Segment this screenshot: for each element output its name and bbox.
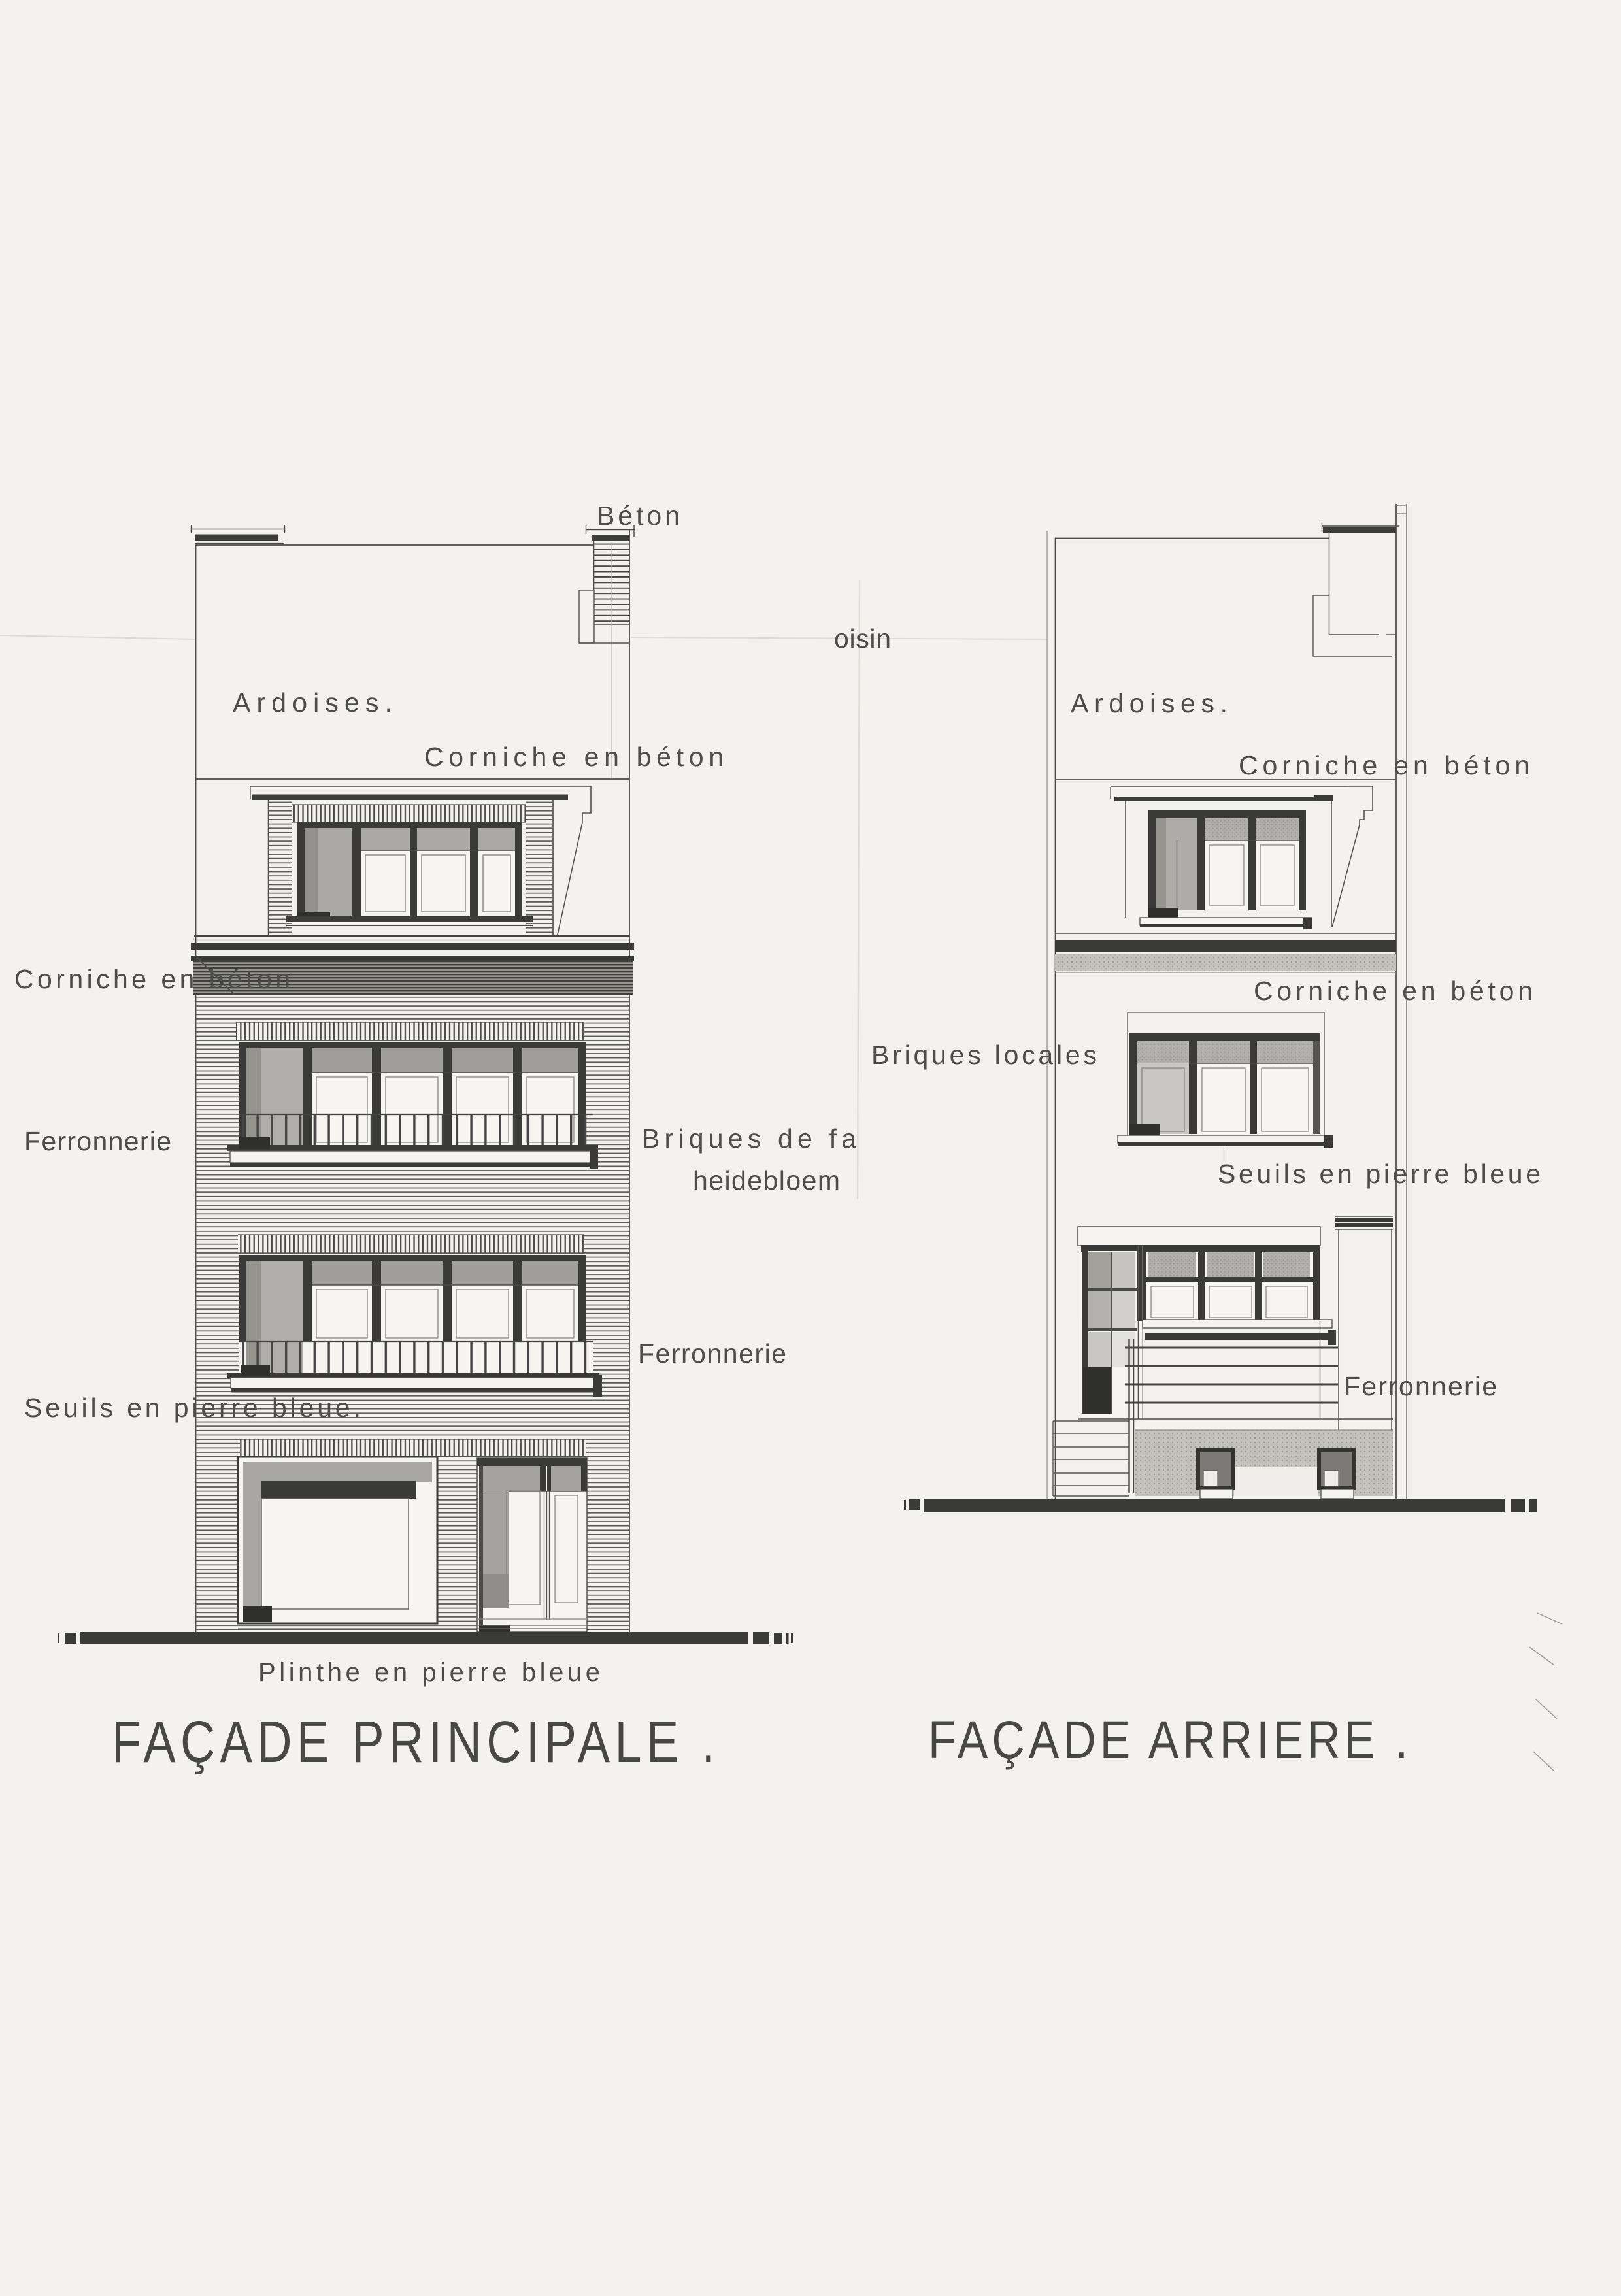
svg-text:FAÇADE PRINCIPALE .: FAÇADE PRINCIPALE . [112,1710,715,1775]
svg-text:Seuils en pierre bleue.: Seuils en pierre bleue. [24,1393,361,1423]
svg-text:Ferronnerie: Ferronnerie [638,1339,786,1369]
svg-text:Ferronnerie: Ferronnerie [24,1126,171,1156]
svg-text:Corniche en béton: Corniche en béton [1239,750,1529,780]
svg-text:Ferronnerie: Ferronnerie [1344,1371,1497,1401]
svg-text:heidebloem: heidebloem [693,1165,840,1195]
svg-text:Béton: Béton [597,501,680,531]
svg-text:Corniche en béton: Corniche en béton [424,742,724,772]
svg-text:Seuils en pierre bleue: Seuils en pierre bleue [1218,1159,1541,1189]
svg-text:Corniche en béton: Corniche en béton [14,964,290,994]
svg-text:Plinthe en pierre bleue: Plinthe en pierre bleue [258,1658,600,1687]
svg-text:Corniche en béton: Corniche en béton [1254,976,1533,1006]
svg-text:oisin: oisin [834,624,891,654]
svg-text:FAÇADE ARRIERE .: FAÇADE ARRIERE . [928,1710,1408,1771]
